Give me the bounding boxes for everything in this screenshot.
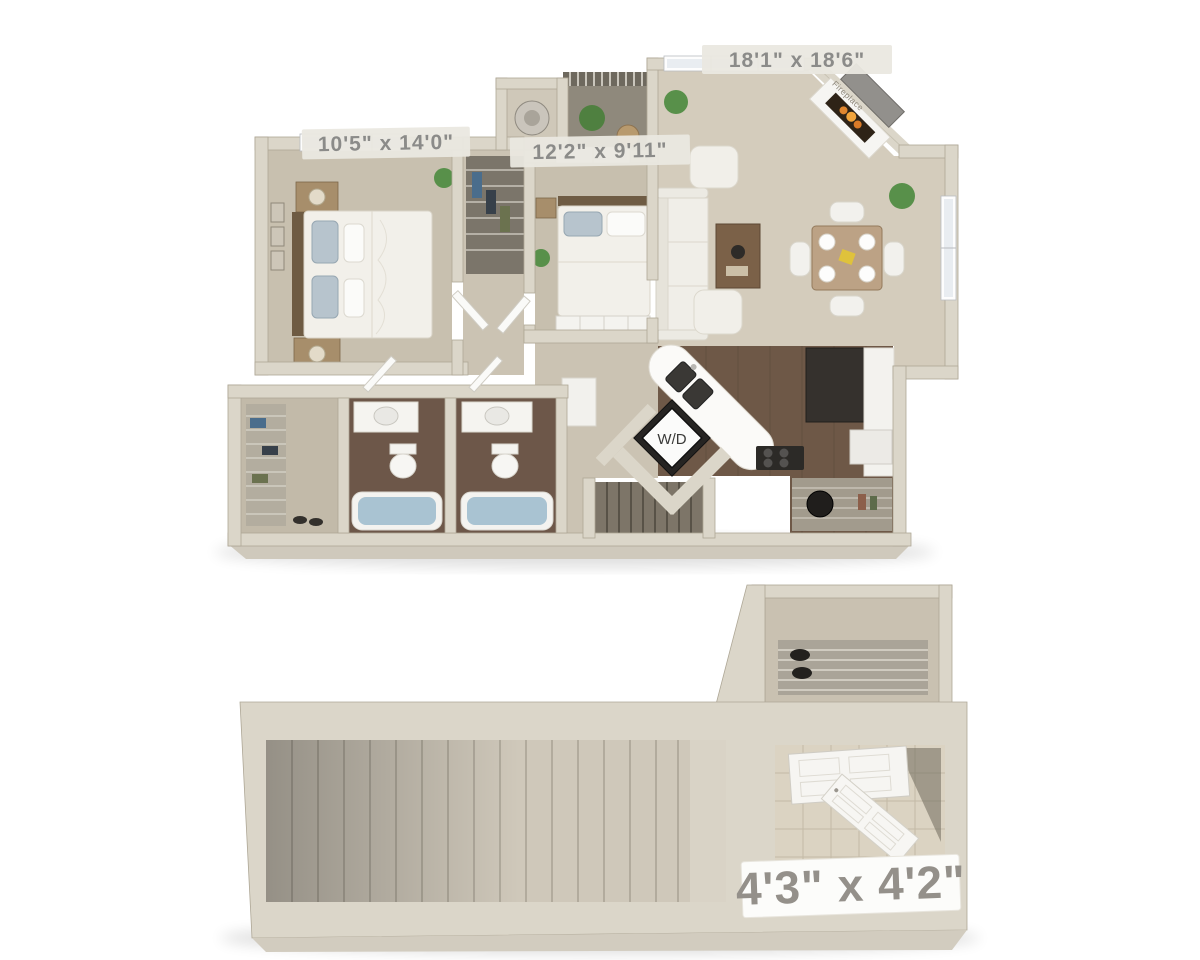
plate [859, 266, 875, 282]
refrigerator [806, 348, 864, 422]
railing [563, 72, 655, 86]
lamp-icon [309, 346, 325, 362]
pantry-shelving [792, 478, 892, 531]
bathtub [461, 492, 553, 530]
plate [859, 234, 875, 250]
bedroom-1-dimension-tag: 10'5" x 14'0" [302, 127, 470, 160]
entry-dimension-tag: 4'3" x 4'2" [735, 854, 967, 918]
dining-chair [830, 202, 864, 222]
staircase [266, 740, 726, 902]
pillow-blue [564, 212, 602, 236]
pantry-item [870, 496, 877, 510]
appliance-white [850, 430, 892, 464]
shoes [790, 649, 810, 661]
bedroom-2-dimension-tag: 12'2" x 9'11" [510, 134, 690, 167]
bathtub [352, 492, 442, 530]
shoes [293, 516, 307, 524]
pillow-white [344, 224, 364, 262]
plate [819, 266, 835, 282]
clothes [500, 206, 510, 232]
pillow-blue [312, 276, 338, 318]
clothes [252, 474, 268, 483]
clothes [472, 172, 482, 198]
lower-bar [240, 702, 967, 952]
pot [807, 491, 833, 517]
toilet-icon [390, 444, 416, 478]
toilet-icon [492, 444, 518, 478]
bedroom-2-dimension-label: 12'2" x 9'11" [532, 139, 668, 164]
clothes [262, 446, 278, 455]
floorplan-canvas: { "title": "Two-level apartment 3D floor… [0, 0, 1200, 960]
hall-closet-shelving [466, 156, 524, 274]
shoes [309, 518, 323, 526]
stove [756, 446, 804, 470]
window [941, 196, 956, 300]
plant-icon [664, 90, 688, 114]
living-room-dimension-label: 18'1" x 18'6" [729, 49, 865, 72]
sink-icon [374, 407, 398, 425]
coffee-table [716, 224, 760, 288]
bed [292, 211, 432, 338]
pillow-blue [312, 221, 338, 263]
pantry-item [858, 494, 866, 510]
plant-icon [889, 183, 915, 209]
clothes [250, 418, 266, 428]
plant-icon [579, 105, 605, 131]
stairwell [266, 740, 726, 902]
living-room-dimension-tag: 18'1" x 18'6" [702, 45, 892, 74]
armchair [694, 290, 742, 334]
bed [558, 196, 650, 316]
washer-dryer-label: W/D [657, 431, 686, 448]
lamp-icon [309, 189, 325, 205]
plate [819, 234, 835, 250]
floorplan-svg: W/D 10'5" x 14'0" 12'2" x 9'11" 18'1" x … [0, 0, 1200, 960]
dining-chair [790, 242, 810, 276]
armchair [690, 146, 738, 188]
connector-wall [714, 585, 765, 712]
pillow-white [344, 279, 364, 317]
upper-floor-plan: W/D 10'5" x 14'0" 12'2" x 9'11" 18'1" x … [228, 45, 958, 559]
nightstand [536, 198, 556, 218]
picture-frames-icon [271, 203, 284, 270]
water-heater-icon [515, 101, 549, 135]
dining-chair [830, 296, 864, 316]
plant-icon [434, 168, 454, 188]
sink-icon [485, 407, 509, 425]
wire-shelving [778, 640, 928, 695]
entry-dimension-label: 4'3" x 4'2" [735, 855, 967, 915]
pillow-white [607, 212, 645, 236]
clothes [486, 190, 496, 214]
dining-chair [884, 242, 904, 276]
bedroom-1-dimension-label: 10'5" x 14'0" [318, 131, 455, 156]
shoes [792, 667, 812, 679]
entry-level-plan: 4'3" x 4'2" [240, 585, 967, 952]
corridor-floor-2 [567, 478, 583, 533]
